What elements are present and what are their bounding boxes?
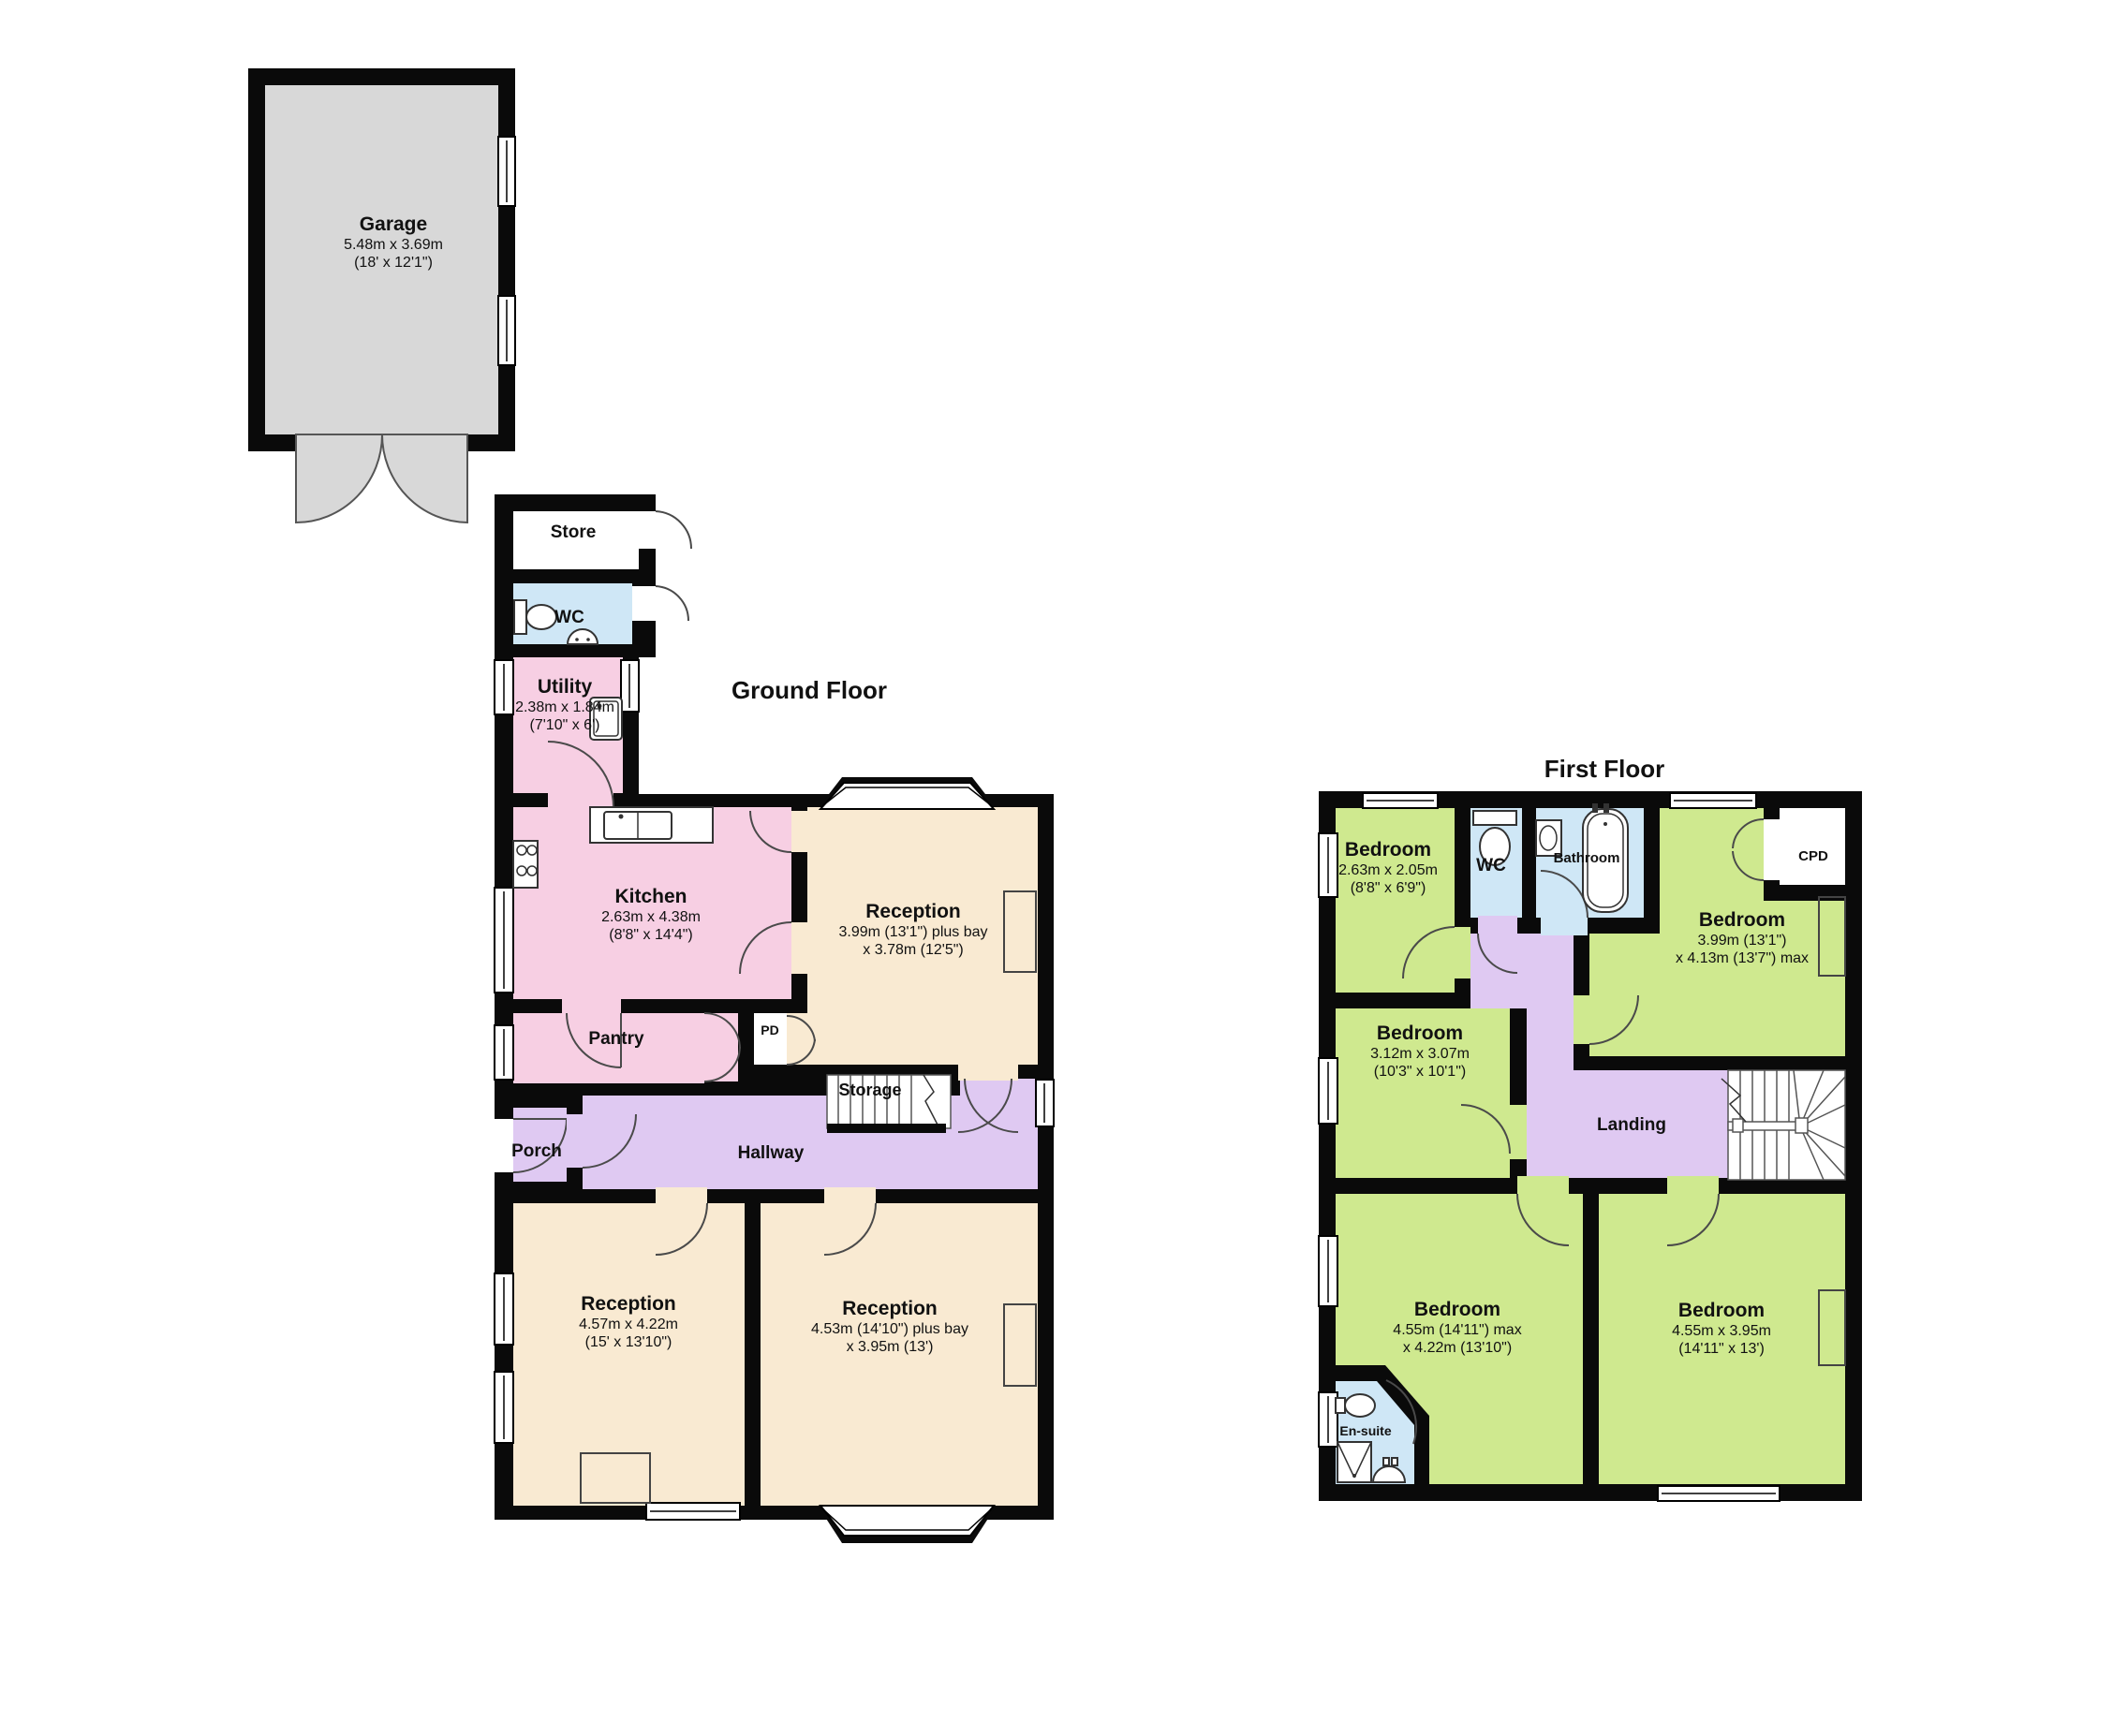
stairs-newel-left	[1733, 1119, 1743, 1132]
bedroom-bottom-left-label: Bedroom 4.55m (14'11") max x 4.22m (13'1…	[1393, 1299, 1521, 1357]
stairs-first	[1721, 1070, 1845, 1180]
wc-ground-label: WC	[554, 607, 584, 629]
reception-left-window-2	[495, 1372, 513, 1443]
pd-cupboard	[754, 1013, 787, 1065]
reception-left-label: Reception 4.57m x 4.22m (15' x 13'10")	[579, 1293, 678, 1351]
kitchen-stove-icon	[513, 841, 538, 888]
utility-window-left	[495, 660, 513, 714]
floorplan-page: Ground Floor First Floor Garage 5.48m x …	[0, 0, 2113, 1736]
stairs-newel-right	[1795, 1118, 1808, 1133]
hallway-window-right	[1036, 1080, 1054, 1126]
garage-label: Garage 5.48m x 3.69m (18' x 12'1")	[344, 213, 443, 272]
garage-door-leaf-left	[296, 434, 382, 522]
reception-left-window-1	[495, 1273, 513, 1345]
bedroom-bottom-left-window-left	[1319, 1236, 1337, 1306]
storage-label: Storage	[838, 1082, 901, 1098]
wc-first-label: WC	[1476, 855, 1506, 877]
bedroom-bottom-right-label: Bedroom 4.55m x 3.95m (14'11" x 13')	[1672, 1300, 1771, 1358]
hallway-room-right	[960, 1079, 1038, 1096]
store-door	[639, 511, 691, 549]
ensuite-label: En-suite	[1339, 1423, 1391, 1438]
porch-label: Porch	[511, 1140, 562, 1163]
bedroom-top-left-window-left	[1319, 833, 1337, 897]
cpd-cupboard-room	[1780, 808, 1845, 885]
bedroom-top-left-room	[1336, 808, 1455, 993]
floorplan-graphic	[0, 0, 2113, 1736]
first-floor-plan	[1319, 791, 1862, 1501]
landing-label: Landing	[1597, 1114, 1666, 1137]
ensuite-shower-icon	[1337, 1442, 1371, 1482]
pantry-label: Pantry	[588, 1028, 643, 1051]
kitchen-sink-icon	[590, 807, 713, 843]
hallway-room	[583, 1096, 1038, 1189]
garage-door-leaf-right	[382, 434, 467, 522]
garage-plan	[248, 68, 515, 522]
garage-window-bottom	[498, 296, 515, 365]
ground-floor-title: Ground Floor	[731, 676, 887, 705]
ground-floor-plan	[495, 494, 1054, 1543]
bedroom-top-left-window-top	[1363, 793, 1438, 808]
kitchen-window-left	[495, 888, 513, 993]
reception-left-window-bottom	[646, 1503, 740, 1520]
bedroom-top-left-label: Bedroom 2.63m x 2.05m (8'8" x 6'9")	[1338, 839, 1438, 897]
cpd-wall-bottom	[1764, 885, 1845, 901]
bedroom-mid-left-window-left	[1319, 1058, 1337, 1124]
bedroom-mid-left-label: Bedroom 3.12m x 3.07m (10'3" x 10'1")	[1370, 1022, 1470, 1081]
ensuite-sink-icon	[1336, 1394, 1375, 1417]
hallway-label: Hallway	[738, 1142, 805, 1165]
pantry-doorway	[704, 1013, 738, 1081]
store-label: Store	[551, 522, 597, 544]
bay-window-bottom	[820, 1506, 994, 1536]
bathroom-label: Bathroom	[1554, 850, 1620, 866]
utility-label: Utility 2.38m x 1.84m (7'10" x 6')	[515, 676, 614, 734]
first-floor-title: First Floor	[1544, 755, 1665, 784]
kitchen-label: Kitchen 2.63m x 4.38m (8'8" x 14'4")	[601, 886, 701, 944]
bedroom-bottom-right-window-bottom	[1658, 1486, 1780, 1501]
reception-top-label: Reception 3.99m (13'1") plus bay x 3.78m…	[838, 901, 987, 959]
cpd-label: CPD	[1798, 848, 1828, 864]
pantry-window-left	[495, 1025, 513, 1080]
bay-window-top	[820, 783, 994, 809]
reception-right-label: Reception 4.53m (14'10") plus bay x 3.95…	[811, 1298, 968, 1356]
reception-left-room	[513, 1203, 745, 1506]
bedroom-top-right-label: Bedroom 3.99m (13'1") x 4.13m (13'7") ma…	[1676, 909, 1809, 967]
pd-label: PD	[761, 1022, 778, 1037]
utility-window-right	[621, 660, 639, 712]
stairs-ground-wall	[827, 1124, 946, 1133]
wc-ground-door	[632, 586, 688, 621]
garage-window-top	[498, 137, 515, 206]
bedroom-top-right-window-top	[1670, 793, 1756, 808]
